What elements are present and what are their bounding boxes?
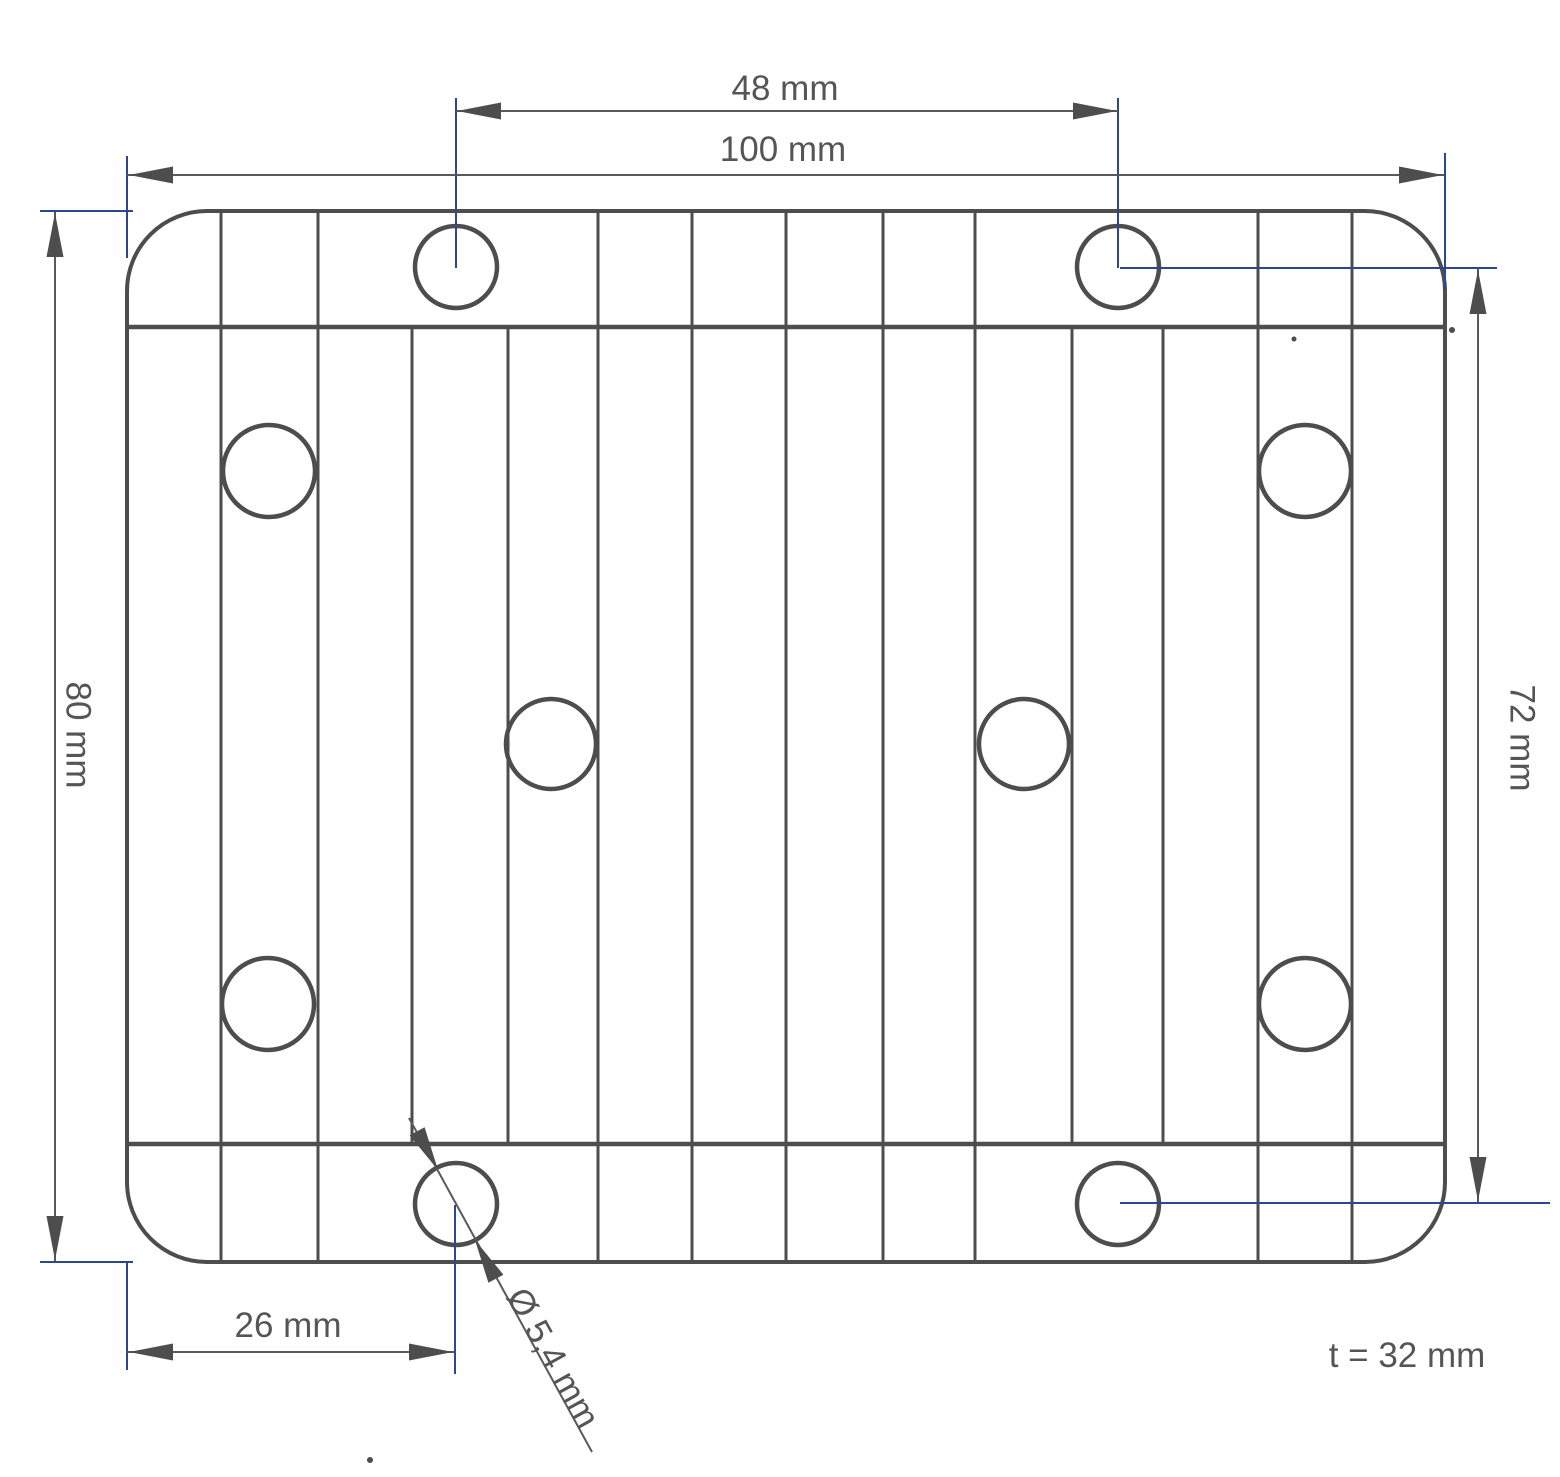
thickness-note: t = 32 mm xyxy=(1329,1336,1486,1375)
speck-dot xyxy=(367,1457,373,1463)
dim-80mm-label: 80 mm xyxy=(59,682,98,789)
dim-72mm-label: 72 mm xyxy=(1503,685,1542,792)
dimension-26mm: 26 mm xyxy=(127,1205,455,1374)
arrowhead-right xyxy=(1399,167,1443,184)
speck-dot xyxy=(1292,337,1297,342)
arrowhead-left xyxy=(129,167,173,184)
speck-dot xyxy=(1449,327,1455,333)
arrowhead-left xyxy=(457,103,501,120)
dim-26mm-label: 26 mm xyxy=(235,1306,342,1345)
thickness-label: t = 32 mm xyxy=(1329,1336,1486,1375)
hole-left-lower xyxy=(222,958,314,1050)
technical-drawing: 48 mm 100 mm 80 mm 72 mm xyxy=(0,0,1560,1477)
arrowhead-upper xyxy=(410,1127,438,1170)
dim-48mm-label: 48 mm xyxy=(732,69,839,108)
arrowhead-bottom xyxy=(1470,1157,1487,1201)
technical-drawing-canvas: 48 mm 100 mm 80 mm 72 mm xyxy=(0,0,1560,1477)
arrowhead-top xyxy=(1470,270,1487,314)
hole-right-lower xyxy=(1259,958,1351,1050)
fin-lines xyxy=(221,213,1352,1260)
arrowhead-right xyxy=(409,1344,453,1361)
arrowhead-left xyxy=(129,1344,173,1361)
arrowhead-right xyxy=(1073,103,1117,120)
hole-diameter-label: Ø 5,4 mm xyxy=(499,1281,608,1434)
dimension-72mm: 72 mm xyxy=(1120,268,1550,1203)
arrowhead-top xyxy=(47,213,64,257)
hole-middle-right xyxy=(979,699,1069,789)
hole-left-upper xyxy=(223,425,315,517)
hole-right-upper xyxy=(1259,425,1351,517)
arrowhead-bottom xyxy=(47,1216,64,1260)
dim-100mm-label: 100 mm xyxy=(720,130,846,169)
hole-middle-left xyxy=(506,699,596,789)
dimension-80mm: 80 mm xyxy=(40,211,133,1262)
